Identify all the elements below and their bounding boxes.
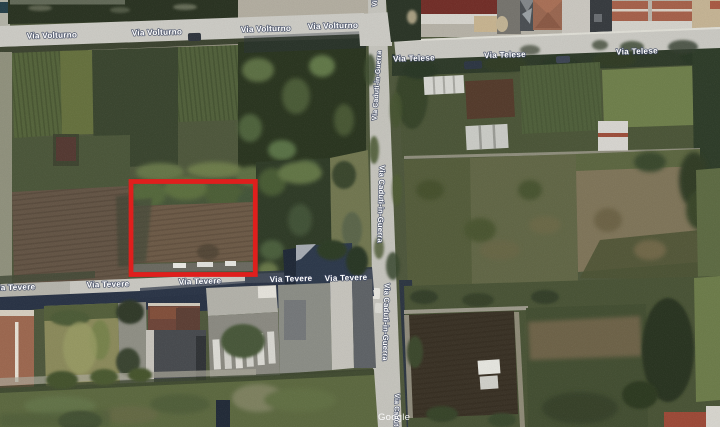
svg-text:Via Volturno: Via Volturno <box>241 24 292 34</box>
svg-text:Via Telese: Via Telese <box>393 53 435 63</box>
svg-text:Via Tevere: Via Tevere <box>270 274 313 284</box>
svg-text:Via Volturno: Via Volturno <box>308 21 359 31</box>
svg-text:Via Tevere: Via Tevere <box>0 282 36 292</box>
svg-text:Via Tevere: Via Tevere <box>179 276 222 286</box>
svg-text:Via Tevere: Via Tevere <box>325 273 368 283</box>
svg-text:Via Volturno: Via Volturno <box>132 27 183 37</box>
svg-text:Via Volturno: Via Volturno <box>27 30 78 40</box>
svg-text:Via Tevere: Via Tevere <box>87 279 130 289</box>
svg-text:Via Telese: Via Telese <box>616 46 658 56</box>
svg-text:Google: Google <box>378 412 410 423</box>
svg-text:Via Telese: Via Telese <box>484 50 526 60</box>
